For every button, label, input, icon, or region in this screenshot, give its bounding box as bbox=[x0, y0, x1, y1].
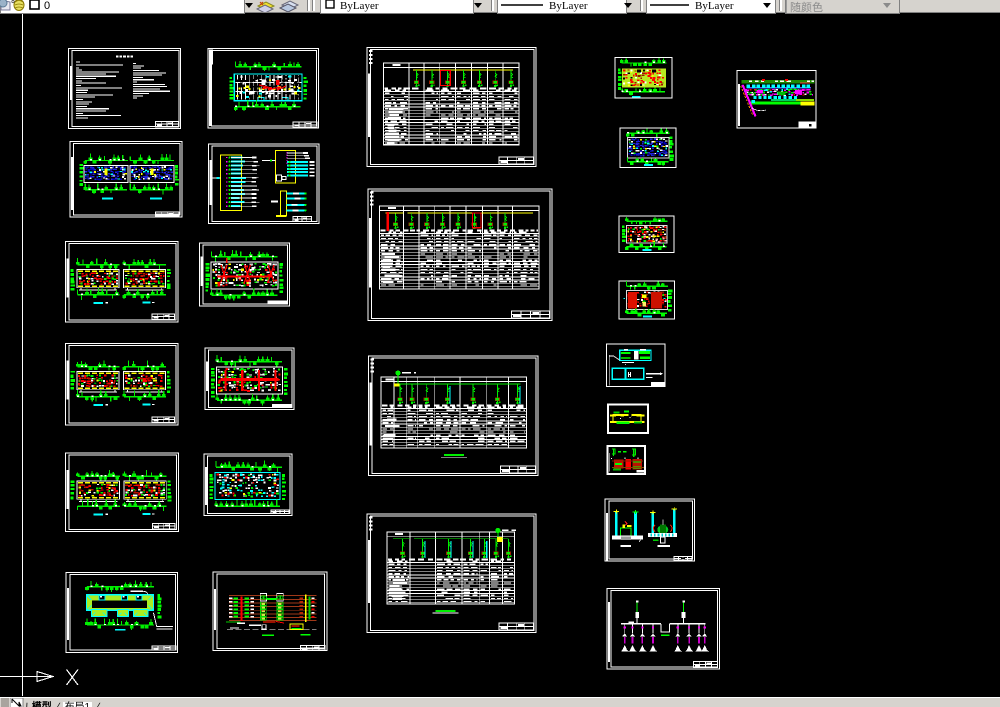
svg-text:ByLayer: ByLayer bbox=[340, 0, 379, 12]
svg-text:0: 0 bbox=[44, 0, 50, 12]
svg-text:ByLayer: ByLayer bbox=[549, 0, 588, 12]
svg-text:ByLayer: ByLayer bbox=[695, 0, 734, 12]
